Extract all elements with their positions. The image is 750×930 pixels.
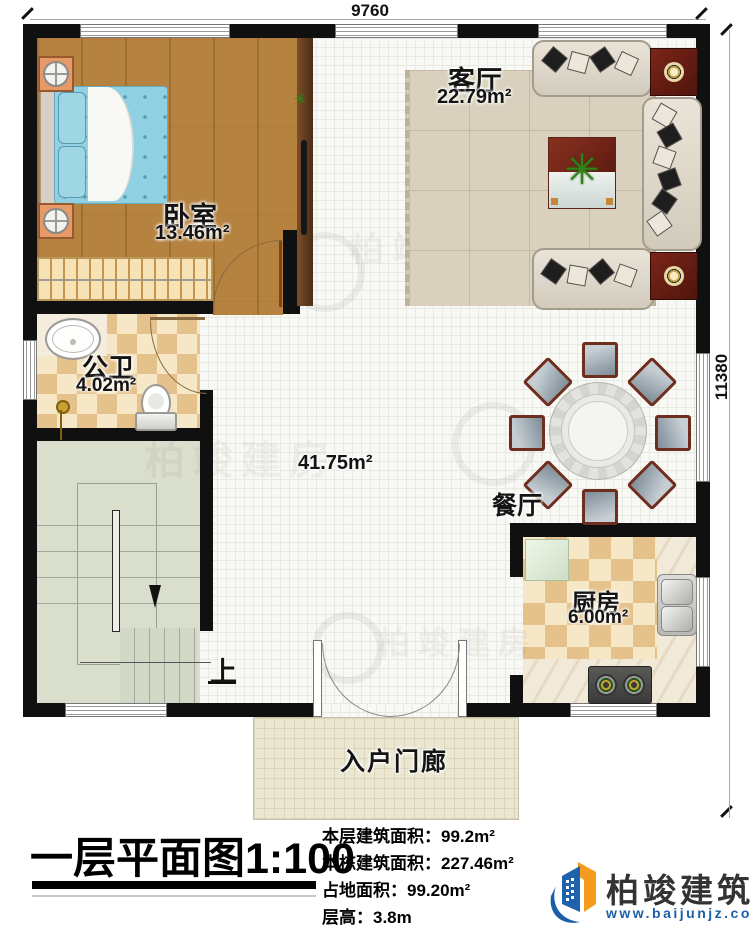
plant-decor-icon: ✳	[294, 92, 310, 108]
wall-kitchen-top	[510, 523, 710, 537]
dimension-top-line	[30, 19, 706, 20]
window-stairs-bottom	[65, 703, 167, 717]
stat-label: 占地面积：	[322, 881, 407, 900]
sofa-pillow	[566, 264, 588, 286]
stat-floor-area: 本层建筑面积：99.2m²	[322, 822, 495, 847]
dining-label: 餐厅	[492, 486, 542, 522]
stat-value: 99.20m²	[407, 881, 470, 900]
window-dining-right	[696, 353, 710, 482]
window-living-top-left	[335, 24, 458, 38]
hall-area: 41.75m²	[298, 452, 373, 475]
stat-label: 层高：	[322, 908, 373, 927]
brand-url: www.baijunjz.com	[606, 905, 750, 921]
plan-title-text: 一层平面图	[30, 835, 245, 883]
lamp-icon	[664, 62, 684, 82]
table-lamp-icon	[43, 208, 69, 234]
burner-icon	[595, 674, 617, 696]
bathroom-area: 4.02m²	[76, 375, 136, 397]
bed-pillow	[58, 146, 86, 198]
floor-plan-page: 9760 11380 柏竣建房 柏竣建房 柏竣建房 ✳	[0, 0, 750, 930]
table-leg	[606, 198, 613, 205]
floor-drain-icon	[56, 400, 70, 414]
title-rule-thick	[32, 881, 316, 889]
stairs-direction-arrow-icon	[149, 585, 161, 608]
wall-stairs-right	[200, 441, 213, 631]
toilet-tank	[135, 412, 177, 431]
sink-basin	[661, 606, 693, 632]
wall-kitchen-left-upper	[510, 537, 523, 577]
lamp-icon	[664, 266, 684, 286]
fridge	[525, 539, 569, 581]
stat-value: 227.46m²	[441, 854, 514, 873]
dining-chair	[509, 415, 545, 451]
bed-pillow	[58, 92, 86, 144]
dimension-tick-icon	[720, 805, 733, 818]
window-living-top-right	[538, 24, 667, 38]
entry-door-leaf-left	[313, 640, 322, 717]
stat-label: 本栋建筑面积：	[322, 854, 441, 873]
dining-table-top	[568, 401, 628, 461]
table-leg	[551, 198, 558, 205]
wall-bedroom-bottom	[37, 301, 213, 314]
stairs-up-underline	[208, 681, 236, 684]
living-area: 22.79m²	[437, 86, 512, 109]
burner-icon	[623, 674, 645, 696]
side-table-top	[650, 48, 698, 96]
stat-floor-height: 层高：3.8m	[322, 903, 412, 928]
table-lamp-icon	[43, 61, 69, 87]
stairs-direction-line	[80, 662, 211, 663]
dimension-top-label: 9760	[330, 1, 410, 21]
bedroom-area: 13.46m²	[155, 222, 230, 245]
tv-icon	[301, 140, 307, 235]
stat-value: 3.8m	[373, 908, 412, 927]
nightstand-bottom	[38, 203, 74, 239]
window-kitchen-bottom	[570, 703, 657, 717]
title-rule-thin	[32, 895, 316, 897]
sink-basin	[661, 579, 693, 605]
dimension-right-label: 11380	[712, 322, 732, 432]
dimension-tick-icon	[695, 7, 708, 20]
stat-label: 本层建筑面积：	[322, 827, 441, 846]
wall-bathroom-right	[200, 390, 213, 428]
dining-chair	[655, 415, 691, 451]
wall-bathroom-bottom	[23, 428, 213, 441]
window-kitchen-right	[696, 577, 710, 667]
kitchen-sink-unit	[657, 574, 697, 636]
plan-title: 一层平面图1:100	[30, 824, 355, 886]
side-table-bottom	[650, 252, 698, 300]
wardrobe	[37, 257, 213, 301]
brand-logo-icon	[550, 860, 602, 926]
porch-label: 入户门廊	[340, 742, 448, 778]
wall-kitchen-left-lower	[510, 675, 523, 703]
dimension-tick-icon	[21, 7, 34, 20]
stairs-railing	[112, 510, 120, 632]
stat-footprint-area: 占地面积：99.20m²	[322, 876, 470, 901]
window-bedroom-top	[80, 24, 230, 38]
window-bathroom-left	[23, 340, 37, 400]
dining-chair	[582, 489, 618, 525]
stat-value: 99.2m²	[441, 827, 495, 846]
kitchen-area: 6.00m²	[568, 607, 628, 629]
nightstand-top	[38, 56, 74, 92]
dining-chair	[582, 342, 618, 378]
plant-icon: ✳	[560, 148, 604, 192]
stove	[588, 666, 652, 704]
stat-building-area: 本栋建筑面积：227.46m²	[322, 849, 514, 874]
floor-drain-pipe	[60, 410, 62, 440]
stairs-lower-steps	[120, 628, 197, 703]
dimension-tick-icon	[720, 23, 733, 36]
